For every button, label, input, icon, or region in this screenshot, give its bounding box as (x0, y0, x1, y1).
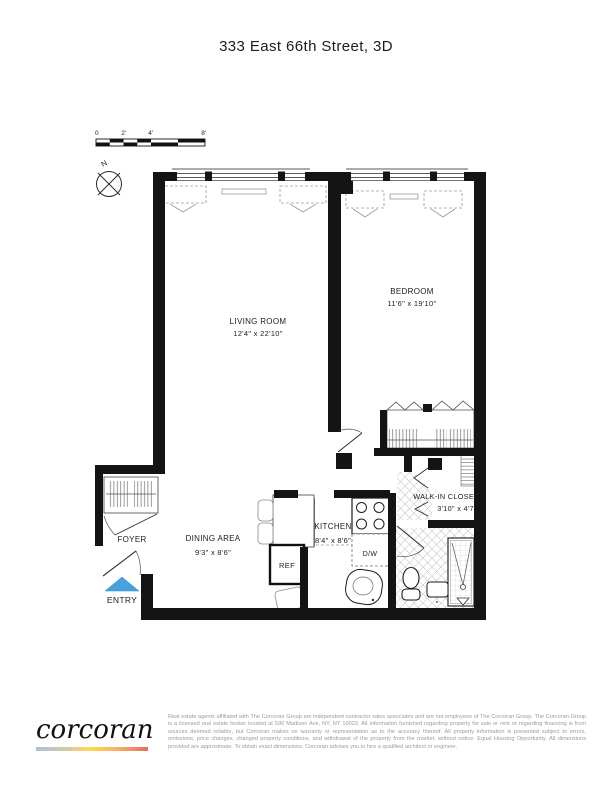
dishwasher-label: D/W (363, 551, 378, 558)
wall (141, 608, 486, 620)
scale-tick-2: 2' (121, 130, 126, 137)
wall (428, 520, 474, 528)
wall (336, 453, 352, 469)
closet-hanging-rod (434, 429, 447, 449)
wall (274, 490, 298, 498)
bedroom-dims: 11'6" x 19'10" (388, 299, 437, 308)
foyer-closet (104, 477, 158, 513)
dining-area-dims: 9'3" x 8'6" (195, 548, 231, 557)
compass-icon: N (97, 158, 122, 196)
bifold-door (387, 402, 423, 410)
dishwasher-fixture (352, 534, 389, 566)
closet-hanging-rod (389, 429, 419, 449)
corcoran-logo: corcoran (36, 714, 154, 751)
window-convectors (160, 186, 462, 217)
bedroom-label: BEDROOM (390, 287, 433, 296)
refrigerator-label: REF (279, 561, 295, 570)
logo-gradient-bar (36, 747, 148, 751)
foyer-closet-door (104, 514, 157, 535)
wall (334, 490, 390, 498)
wall (464, 172, 486, 181)
wall (374, 448, 474, 456)
wall (153, 172, 177, 181)
bifold-door (432, 401, 474, 410)
footer: corcoran Real estate agents affiliated w… (36, 714, 586, 751)
kitchen-label: KITCHEN (314, 522, 351, 531)
wall (388, 493, 396, 620)
bedroom-door (338, 429, 362, 452)
entry-label: ENTRY (107, 595, 137, 605)
floor-plan-drawing: 0 2' 4' 8' N (0, 0, 612, 660)
wall (300, 547, 308, 608)
entry-door (103, 551, 140, 576)
living-room-label: LIVING ROOM (230, 317, 287, 326)
shower-fixture (448, 538, 474, 606)
closet-hanging-rod (449, 429, 471, 449)
walk-in-closet-dims: 3'10" x 4'7" (437, 504, 477, 513)
scale-tick-0: 0 (95, 130, 99, 137)
entry-arrow-icon (105, 577, 139, 591)
wall (153, 181, 165, 465)
corcoran-logo-text: corcoran (36, 717, 154, 744)
wall (428, 458, 442, 470)
foyer-label: FOYER (117, 535, 146, 544)
wall (423, 404, 432, 412)
scale-bar: 0 2' 4' 8' (95, 130, 207, 146)
compass-north-label: N (100, 158, 109, 169)
kitchen-dims: 8'4" x 8'6" (315, 536, 351, 545)
entry-marker: ENTRY (105, 577, 139, 605)
dining-chair (258, 523, 273, 544)
wall (474, 181, 486, 620)
scale-tick-8: 8' (201, 130, 206, 137)
wall (305, 172, 351, 181)
scale-tick-4: 4' (148, 130, 153, 137)
wall (404, 456, 412, 472)
wall (95, 465, 165, 474)
wall (341, 181, 353, 194)
dining-chair (258, 500, 273, 521)
walk-in-closet-label: WALK-IN CLOSET (413, 492, 479, 501)
kitchen-sink-fixture (344, 567, 385, 606)
stove-fixture (352, 498, 389, 534)
floor-plan-page: 333 East 66th Street, 3D 0 2' 4' 8' (0, 0, 612, 792)
wall (328, 181, 341, 432)
disclaimer-text: Real estate agents affiliated with The C… (168, 714, 586, 751)
wall (95, 474, 103, 546)
dining-area-label: DINING AREA (186, 534, 241, 543)
toilet-fixture (402, 568, 420, 601)
living-room-dims: 12'4" x 22'10" (233, 329, 283, 338)
